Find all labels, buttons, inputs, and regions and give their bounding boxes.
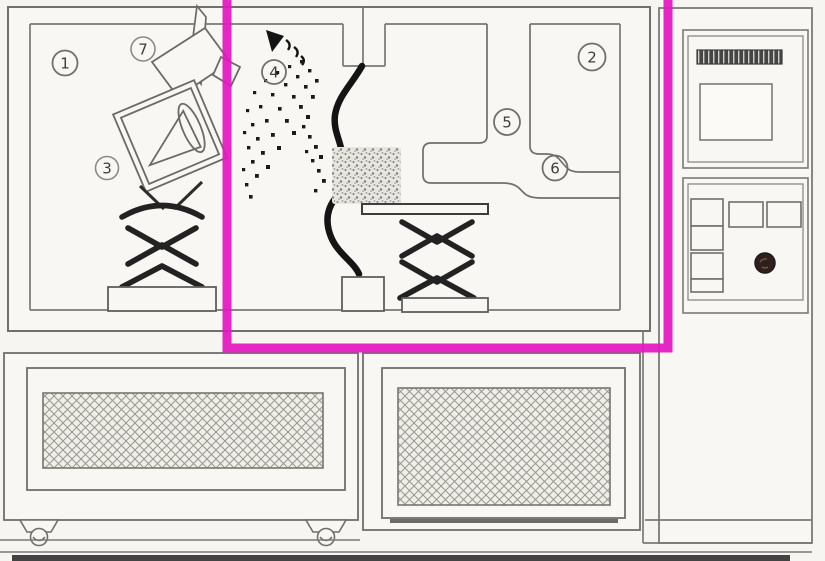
vent-grille — [697, 50, 782, 64]
machine-schematic: 1 2 3 4 5 6 7 — [0, 0, 825, 561]
base-cabinets — [4, 353, 640, 546]
left-grille — [43, 393, 323, 468]
panel-button — [767, 202, 801, 227]
sample-tray — [362, 204, 488, 214]
left-lift-base — [108, 287, 216, 311]
svg-text:5: 5 — [502, 114, 512, 132]
panel-button — [729, 202, 763, 227]
panel-button — [691, 199, 723, 226]
schematic-page: 1 2 3 4 5 6 7 — [0, 0, 825, 561]
right-cabinet-shadow — [390, 519, 618, 523]
boom-anchor-box — [342, 277, 384, 311]
specimen-block — [332, 147, 401, 204]
svg-text:1: 1 — [60, 55, 70, 73]
right-grille — [398, 388, 610, 505]
svg-text:4: 4 — [269, 64, 279, 82]
svg-text:3: 3 — [102, 160, 112, 178]
control-knob — [755, 253, 775, 273]
panel-button — [691, 279, 723, 292]
svg-text:2: 2 — [587, 49, 597, 67]
middle-lift-base — [402, 298, 488, 312]
svg-text:6: 6 — [550, 160, 560, 178]
panel-button — [691, 253, 723, 279]
display-screen — [700, 84, 772, 140]
svg-text:7: 7 — [138, 41, 148, 59]
panel-button — [691, 226, 723, 250]
